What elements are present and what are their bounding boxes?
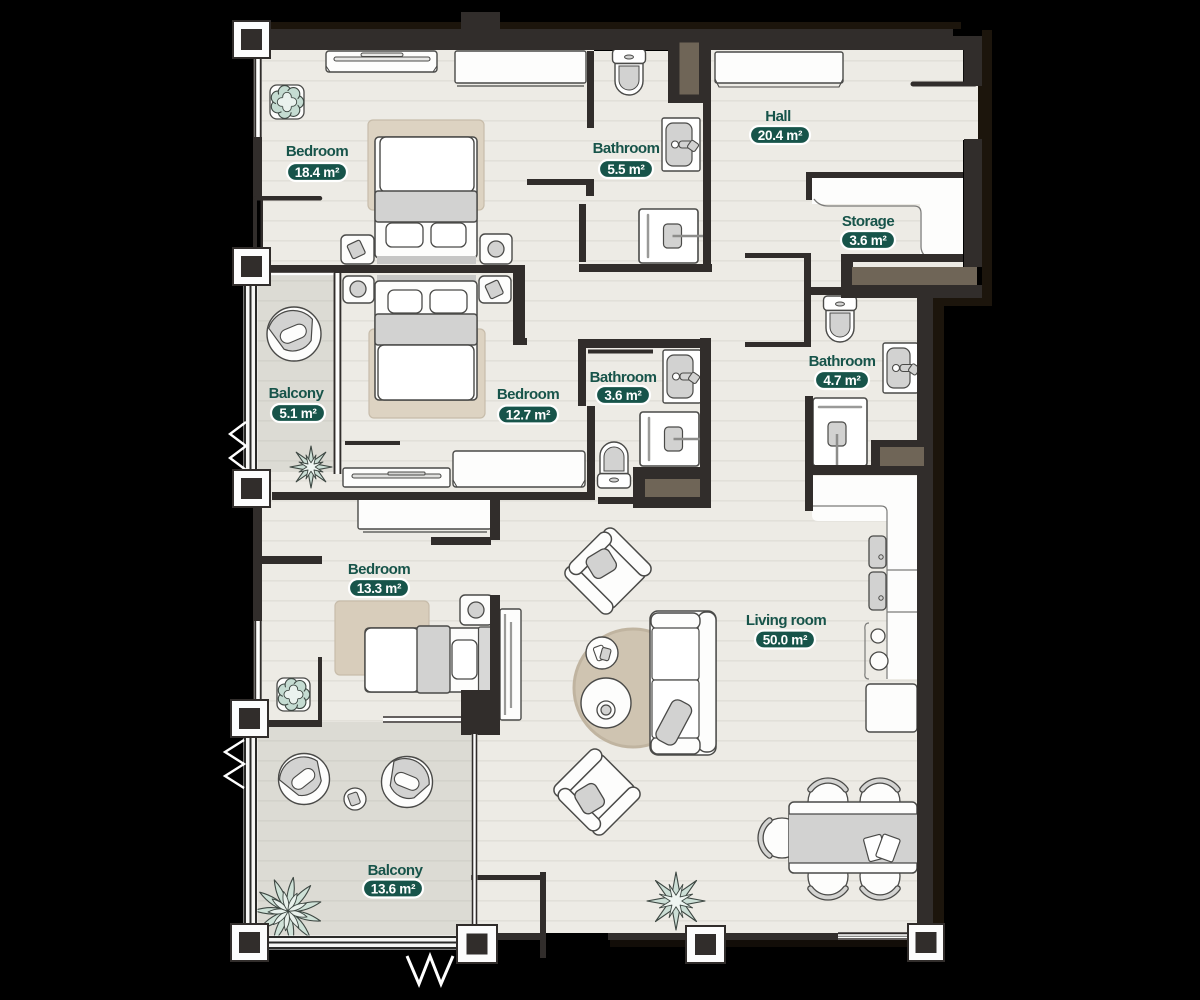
svg-text:3.6 m²: 3.6 m² xyxy=(849,233,887,248)
svg-text:20.4 m²: 20.4 m² xyxy=(758,128,803,143)
svg-text:Hall: Hall xyxy=(765,108,791,125)
svg-text:Bathroom: Bathroom xyxy=(809,353,876,370)
svg-text:Storage: Storage xyxy=(842,213,895,230)
svg-text:Bedroom: Bedroom xyxy=(286,143,349,160)
svg-text:Bathroom: Bathroom xyxy=(590,369,657,386)
svg-text:Balcony: Balcony xyxy=(368,862,424,879)
svg-text:Bedroom: Bedroom xyxy=(348,561,411,578)
svg-text:Bedroom: Bedroom xyxy=(497,386,560,403)
svg-text:50.0 m²: 50.0 m² xyxy=(763,632,808,647)
svg-text:Balcony: Balcony xyxy=(269,385,325,402)
svg-text:12.7 m²: 12.7 m² xyxy=(506,407,551,422)
svg-text:Bathroom: Bathroom xyxy=(593,140,660,157)
svg-text:3.6 m²: 3.6 m² xyxy=(604,388,642,403)
svg-text:5.5 m²: 5.5 m² xyxy=(607,162,645,177)
svg-text:Living room: Living room xyxy=(746,612,826,629)
svg-text:18.4 m²: 18.4 m² xyxy=(295,165,340,180)
svg-text:13.3 m²: 13.3 m² xyxy=(357,581,402,596)
svg-text:5.1 m²: 5.1 m² xyxy=(279,406,317,421)
svg-text:4.7 m²: 4.7 m² xyxy=(823,373,861,388)
svg-text:13.6 m²: 13.6 m² xyxy=(371,881,416,896)
